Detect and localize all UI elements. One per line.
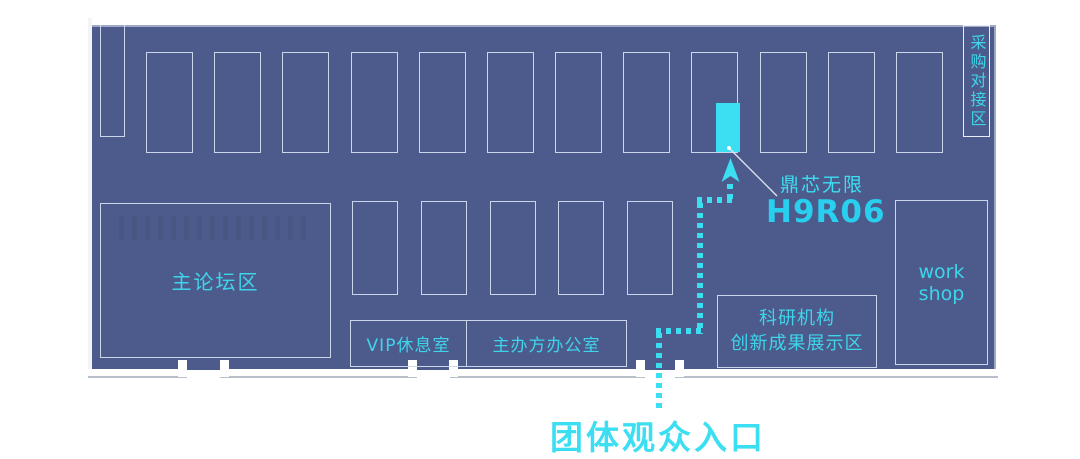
workshop-zone: work shop	[895, 200, 988, 365]
booth-outline	[214, 52, 261, 153]
route-path-segment	[656, 328, 703, 334]
bottom-wall-segment	[220, 369, 417, 378]
procurement-zone: 采购对接区	[963, 25, 990, 137]
booth-outline	[490, 201, 536, 295]
route-arrow-icon	[721, 158, 740, 183]
organizer-office-zone: 主办方办公室	[466, 320, 627, 367]
top-booth-row	[146, 52, 943, 153]
booth-number-label: H9R06	[766, 194, 886, 230]
booth-outline	[896, 52, 943, 153]
booth-outline	[627, 201, 673, 295]
booth-outline	[555, 52, 602, 153]
booth-name-label: 鼎芯无限	[780, 170, 864, 197]
route-path-segment	[727, 184, 733, 199]
route-path-segment	[697, 203, 703, 334]
booth-outline	[146, 52, 193, 153]
organizer-office-label: 主办方办公室	[493, 331, 601, 356]
exhibition-floor-map: 采购对接区 主论坛区 VIP休息室 主办方办公室 科研机构 创新成果展示区 wo…	[0, 0, 1080, 459]
door-post	[675, 360, 684, 377]
door-post	[636, 360, 645, 377]
workshop-label: work shop	[896, 261, 987, 305]
booth-outline	[282, 52, 329, 153]
research-display-label: 科研机构 创新成果展示区	[731, 307, 864, 356]
booth-outline	[352, 201, 398, 295]
main-forum-label: 主论坛区	[172, 266, 260, 295]
route-path-segment	[656, 333, 662, 413]
bottom-wall-segment	[450, 369, 645, 378]
door-post	[220, 360, 229, 377]
booth-outline	[558, 201, 604, 295]
research-display-zone: 科研机构 创新成果展示区	[717, 295, 877, 368]
door-post	[178, 360, 187, 377]
bottom-wall-segment	[88, 369, 187, 378]
main-forum-zone: 主论坛区	[100, 203, 331, 358]
booth-outline	[760, 52, 807, 153]
vip-lounge-label: VIP休息室	[367, 331, 451, 356]
bottom-wall-segment	[675, 369, 998, 378]
entrance-label: 团体观众入口	[458, 411, 858, 459]
left-wall	[88, 18, 92, 378]
vip-lounge-zone: VIP休息室	[350, 320, 467, 367]
forum-seating-hatch	[119, 216, 314, 240]
booth-outline	[487, 52, 534, 153]
procurement-zone-label: 采购对接区	[969, 34, 985, 129]
booth-outline	[828, 52, 875, 153]
booth-outline	[351, 52, 398, 153]
middle-booth-row	[352, 201, 673, 295]
booth-outline	[419, 52, 466, 153]
booth-outline	[100, 25, 125, 137]
booth-outline	[623, 52, 670, 153]
booth-outline	[421, 201, 467, 295]
